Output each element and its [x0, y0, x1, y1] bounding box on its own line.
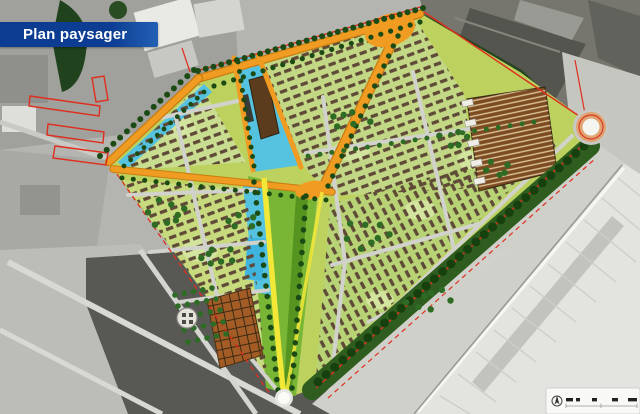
- plan-paysager-figure: Plan paysager: [0, 0, 640, 414]
- page-title: Plan paysager: [0, 26, 127, 43]
- title-banner: Plan paysager: [0, 22, 158, 47]
- east-roundabout: [573, 109, 609, 145]
- south-tip-roundabout: [275, 389, 293, 407]
- scale-legend: [546, 388, 640, 414]
- west-checkered-roundabout: [177, 308, 197, 328]
